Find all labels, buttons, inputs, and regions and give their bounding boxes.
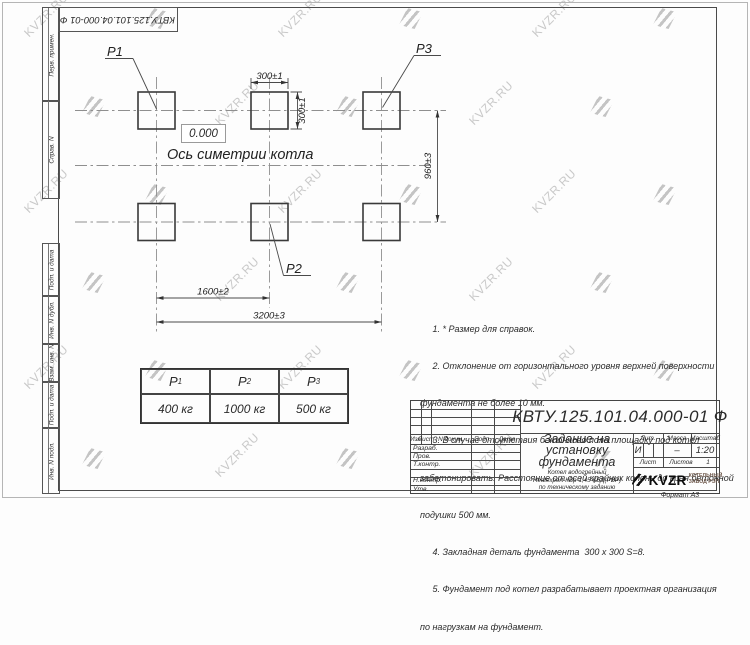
dim-1600: 1600±2 bbox=[197, 287, 229, 298]
tb-scale-header: Масштаб bbox=[691, 433, 719, 443]
dim-960: 960±3 bbox=[423, 152, 434, 179]
tb-row-razrab: Разраб. bbox=[411, 444, 473, 452]
tb-lit-header: Лит. bbox=[633, 433, 663, 443]
tb-sheets-label: Листов bbox=[663, 457, 699, 467]
note-line: подушки 500 мм. bbox=[420, 509, 720, 521]
tb-row-prov: Пров. bbox=[411, 452, 473, 460]
tb-row-tkontr: Т.контр. bbox=[411, 460, 473, 468]
tb-header-ndokum: N докум. bbox=[431, 434, 471, 444]
tb-row-nkontr: Н.контр. bbox=[411, 477, 473, 485]
note-line: 4. Закладная деталь фундамента 300 x 300… bbox=[420, 546, 720, 558]
label-p1: P1 bbox=[107, 44, 123, 59]
kvzr-logo-text: KVZR bbox=[649, 473, 687, 488]
sidebar-cell-inv-dubl: Инв. N дубл. bbox=[42, 295, 60, 345]
corner-stamp-designation: КВТУ.125.101.04.000-01 Ф bbox=[60, 14, 175, 25]
loads-table-value-p3: 500 кг bbox=[279, 394, 348, 423]
note-line: по нагрузкам на фундамент. bbox=[420, 621, 720, 633]
tb-lit-value: И bbox=[633, 443, 643, 457]
corner-stamp: КВТУ.125.101.04.000-01 Ф bbox=[58, 7, 178, 32]
axis-caption: Ось симетрии котла bbox=[167, 147, 313, 163]
loads-table-value-p2: 1000 кг bbox=[210, 394, 279, 423]
title-block: Изм Лист N докум. Подп. Дата Разраб. Про… bbox=[410, 400, 720, 494]
sidebar-cell-inv-podl: Инв. N подл. bbox=[42, 427, 60, 494]
kvzr-logo: KVZR КОТЕЛЬНЫЙ ЗАВОД РЭП bbox=[635, 468, 719, 492]
tb-subtitle: Котел водогрейный Heatexpert-КВр-1,45-КБ… bbox=[521, 468, 633, 493]
loads-table-value-p1: 400 кг bbox=[141, 394, 210, 423]
tb-mass-header: Масса bbox=[663, 433, 691, 443]
loads-table-header-p1: Р1 bbox=[141, 369, 210, 394]
tb-designation: КВТУ.125.101.04.000-01 Ф bbox=[521, 401, 719, 433]
tb-row-utv: Утв. bbox=[411, 485, 473, 493]
kvzr-logo-caption: КОТЕЛЬНЫЙ ЗАВОД РЭП bbox=[689, 474, 723, 486]
tb-sheet-label: Лист bbox=[633, 457, 663, 467]
sidebar-cell-podp-data-1: Подп. и дата bbox=[42, 243, 60, 297]
sidebar-cell-podp-data-2: Подп. и дата bbox=[42, 381, 60, 429]
tb-doc-title: Задание на установку фундамента bbox=[521, 433, 633, 469]
dim-3200: 3200±3 bbox=[253, 311, 285, 322]
drawing-sheet: { "watermark": {"text": "KVZR.RU"}, "cor… bbox=[0, 0, 750, 500]
note-line: 1. * Размер для справок. bbox=[420, 323, 720, 335]
level-mark: 0.000 bbox=[181, 124, 226, 143]
label-p3: P3 bbox=[416, 41, 433, 56]
tb-mass-value: – bbox=[663, 443, 691, 457]
tb-header-list: Лист bbox=[421, 434, 431, 444]
loads-table-header-p3: Р3 bbox=[279, 369, 348, 394]
label-p2: P2 bbox=[286, 261, 303, 276]
note-line: 5. Фундамент под котел разрабатывает про… bbox=[420, 583, 720, 595]
loads-table: Р1 Р2 Р3 400 кг 1000 кг 500 кг bbox=[140, 368, 349, 424]
tb-header-data: Дата bbox=[494, 434, 520, 444]
loads-table-header-p2: Р2 bbox=[210, 369, 279, 394]
sidebar-cell-sprav-n: Справ. N bbox=[42, 100, 60, 199]
tb-sheets-value: 1 bbox=[699, 457, 717, 467]
note-line: 2. Отклонение от горизонтального уровня … bbox=[420, 360, 720, 372]
tb-header-podp: Подп. bbox=[471, 434, 494, 444]
dim-300-top: 300±1 bbox=[256, 71, 282, 82]
tb-scale-value: 1:20 bbox=[691, 443, 719, 457]
leader-p3 bbox=[383, 56, 442, 108]
dim-300-right: 300±1 bbox=[297, 97, 308, 123]
leader-p1 bbox=[105, 59, 157, 110]
sidebar-cell-perv-primen: Перв. примен. bbox=[42, 7, 60, 102]
format-label: Формат А3 bbox=[630, 492, 730, 499]
sidebar-cell-vzam-inv: Взам. инв. N bbox=[42, 343, 60, 383]
